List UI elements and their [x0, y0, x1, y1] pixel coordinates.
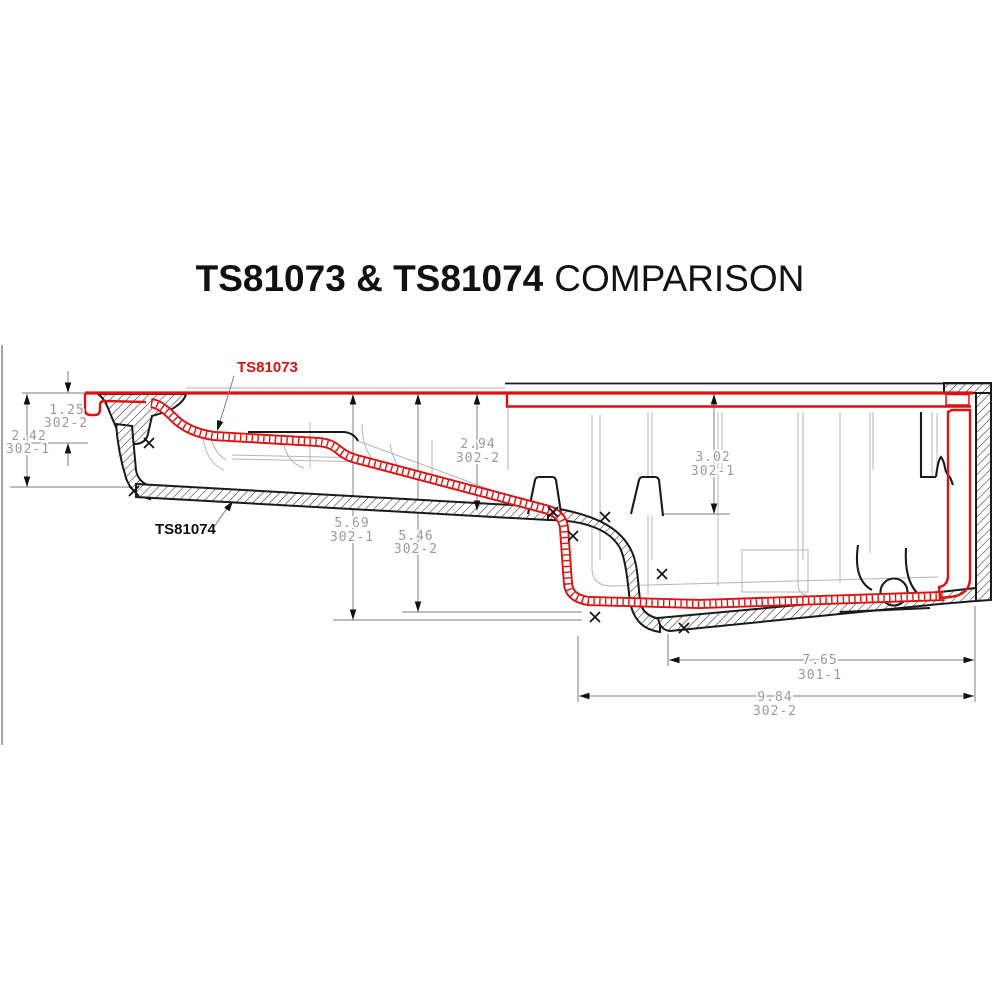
title-part-numbers: TS81073 & TS81074	[196, 258, 544, 299]
label-ts81073-arrow	[214, 420, 224, 432]
dimension-arrows	[24, 383, 974, 700]
dim-ref: 302-1	[330, 530, 374, 545]
dim-value: 2.94	[460, 437, 495, 452]
label-ts81074: TS81074	[155, 499, 236, 538]
dimension-5-46: 5.46 302-2	[394, 529, 438, 557]
pan73-right-wall	[939, 410, 970, 598]
dim-ref: 302-2	[44, 416, 88, 431]
dimension-7-65: 7.65 301-1	[798, 653, 842, 683]
dim-ref: 301-1	[798, 668, 842, 683]
dimension-3-02: 3.02 302-1	[691, 450, 735, 479]
pan73-rail-end-hatch	[946, 395, 969, 406]
oil-pan-comparison-drawing-page: TS81073 & TS81074COMPARISON	[0, 0, 1000, 1000]
page-title: TS81073 & TS81074COMPARISON	[196, 258, 805, 299]
dim-ref: 302-2	[456, 451, 500, 466]
label-ts81074-text: TS81074	[155, 521, 217, 538]
pan74-right-wall	[976, 392, 991, 601]
title-suffix: COMPARISON	[554, 258, 804, 299]
dimension-9-84: 9.84 302-2	[753, 690, 797, 719]
dim-value: 3.02	[695, 450, 730, 465]
dim-ref: 302-1	[6, 442, 50, 457]
label-ts81073-leader	[219, 376, 234, 425]
dim-ref: 302-2	[394, 542, 438, 557]
label-ts81073-text: TS81073	[237, 359, 298, 376]
dimension-2-42: 2.42 302-1	[6, 429, 50, 457]
pan73-rail-step	[507, 394, 971, 407]
dim-value: 7.65	[802, 653, 837, 668]
dim-value: 9.84	[757, 690, 792, 705]
baffle-boss-right	[631, 477, 663, 516]
pan-cross-section-drawing: TS81073 & TS81074COMPARISON	[0, 0, 1000, 1000]
dimension-2-94: 2.94 302-2	[456, 437, 500, 466]
dim-ref: 302-2	[753, 704, 797, 719]
dim-ref: 302-1	[691, 464, 735, 479]
dimension-1-25: 1.25 302-2	[44, 403, 88, 431]
dim-value: 5.69	[334, 516, 369, 531]
dimension-5-69: 5.69 302-1	[330, 516, 374, 545]
label-ts81073: TS81073	[214, 359, 298, 432]
